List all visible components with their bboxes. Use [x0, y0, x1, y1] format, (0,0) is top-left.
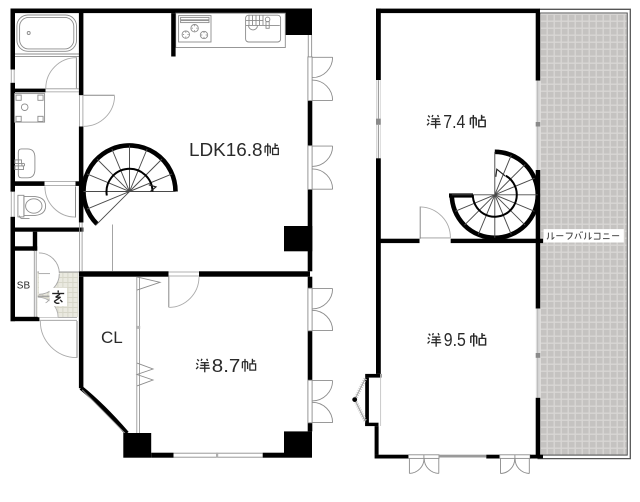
svg-text:CL: CL [101, 328, 123, 347]
svg-text:9.5: 9.5 [444, 330, 466, 350]
svg-text:LDK16.8: LDK16.8 [189, 140, 263, 160]
svg-text:8.7: 8.7 [212, 356, 241, 376]
svg-text:7.4: 7.4 [443, 112, 465, 132]
svg-text:SB: SB [17, 280, 31, 291]
